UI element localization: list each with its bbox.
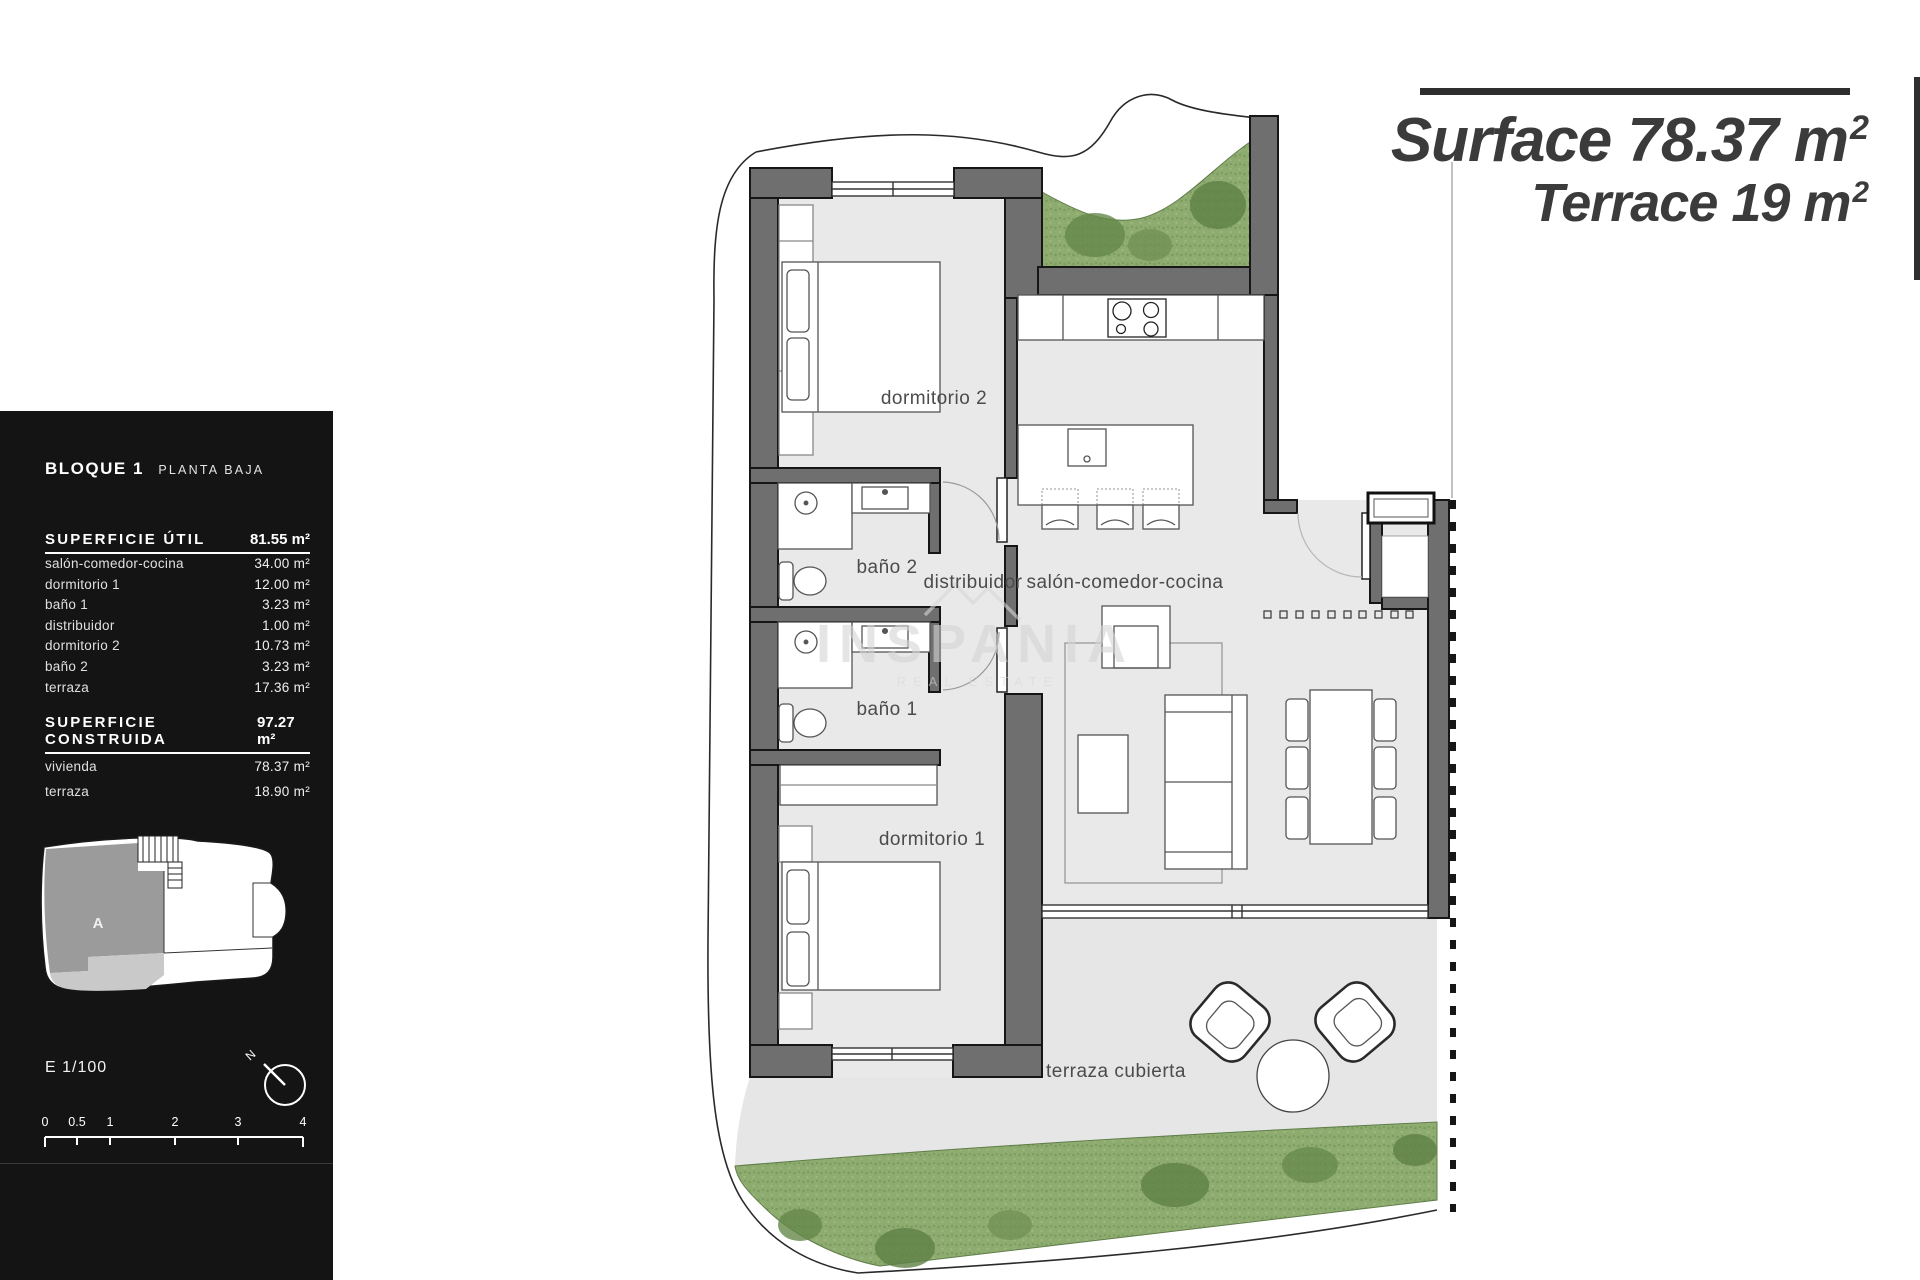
- keyplan-map: A: [26, 831, 311, 1026]
- table-row: vivienda78.37 m²: [45, 754, 310, 779]
- surface-unit: m2: [1794, 106, 1868, 175]
- label-bano2: baño 2: [856, 557, 917, 578]
- construida-header: SUPERFICIE CONSTRUIDA 97.27 m²: [45, 714, 310, 754]
- page-edge-bar: [1914, 77, 1920, 280]
- table-row: terraza17.36 m²: [45, 678, 310, 699]
- window-living-icon: [1042, 905, 1428, 918]
- surface-label: Surface: [1391, 106, 1611, 175]
- window-dormitorio2-icon: [832, 182, 954, 196]
- util-header: SUPERFICIE ÚTIL 81.55 m²: [45, 531, 310, 554]
- surface-value: 78.37: [1628, 106, 1778, 175]
- keyplan-unit-label: A: [93, 915, 104, 932]
- terrace-value: 19: [1731, 173, 1789, 233]
- compass-north-label: N: [243, 1047, 259, 1063]
- watermark-text: INSPANIA: [816, 614, 1134, 674]
- label-dormitorio2: dormitorio 2: [881, 388, 987, 409]
- util-title: SUPERFICIE ÚTIL: [45, 531, 206, 548]
- scale-text: E 1/100: [45, 1059, 107, 1077]
- scale-bar: 0 0.5 1 2 3 4: [0, 1109, 333, 1155]
- label-terraza: terraza cubierta: [1046, 1061, 1186, 1082]
- scalebar-tick: 4: [300, 1115, 307, 1129]
- label-salon: salón-comedor-cocina: [1027, 572, 1224, 593]
- terrace-line: Terrace 19 m2: [1391, 172, 1868, 234]
- table-row: baño 23.23 m²: [45, 657, 310, 678]
- superficie-construida-table: SUPERFICIE CONSTRUIDA 97.27 m² vivienda7…: [45, 714, 310, 804]
- label-distribuidor: distribuidor: [924, 572, 1023, 593]
- table-row: salón-comedor-cocina34.00 m²: [45, 554, 310, 575]
- compass-icon: N: [240, 1039, 320, 1117]
- floorplan-page: INSPANIA REAL ESTATE dormitorio 2 baño 2…: [0, 0, 1920, 1280]
- surface-header: Surface 78.37 m2 Terrace 19 m2: [1391, 88, 1868, 234]
- label-bano1: baño 1: [856, 699, 917, 720]
- dining-set-icon: [1286, 690, 1396, 844]
- scalebar-tick: 0.5: [68, 1115, 85, 1129]
- kitchen-counter-icon: [1018, 295, 1264, 340]
- block-title-row: BLOQUE 1 PLANTA BAJA: [45, 459, 264, 479]
- table-row: terraza18.90 m²: [45, 779, 310, 804]
- construida-title: SUPERFICIE CONSTRUIDA: [45, 714, 257, 748]
- watermark-subtext: REAL ESTATE: [897, 674, 1060, 689]
- window-dormitorio1-icon: [832, 1048, 953, 1060]
- table-row: distribuidor1.00 m²: [45, 616, 310, 637]
- info-panel: BLOQUE 1 PLANTA BAJA SUPERFICIE ÚTIL 81.…: [0, 411, 333, 1280]
- bed-dormitorio1-icon: [779, 765, 940, 1029]
- construida-total: 97.27 m²: [257, 714, 310, 748]
- terrace-unit: m2: [1803, 173, 1868, 233]
- block-title: BLOQUE 1: [45, 459, 144, 478]
- table-row: dormitorio 210.73 m²: [45, 636, 310, 657]
- superficie-util-table: SUPERFICIE ÚTIL 81.55 m² salón-comedor-c…: [45, 531, 310, 698]
- kitchen-island-icon: [1018, 425, 1193, 529]
- panel-divider: [0, 1163, 333, 1164]
- surface-line: Surface 78.37 m2: [1391, 109, 1868, 172]
- scalebar-tick: 2: [172, 1115, 179, 1129]
- label-dormitorio1: dormitorio 1: [879, 829, 985, 850]
- util-total: 81.55 m²: [250, 531, 310, 548]
- header-rule: [1420, 88, 1850, 95]
- scalebar-tick: 0: [42, 1115, 49, 1129]
- table-row: dormitorio 112.00 m²: [45, 575, 310, 596]
- scalebar-tick: 3: [235, 1115, 242, 1129]
- table-row: baño 13.23 m²: [45, 595, 310, 616]
- block-subtitle: PLANTA BAJA: [158, 463, 264, 477]
- terrace-label: Terrace: [1531, 173, 1717, 233]
- scalebar-tick: 1: [107, 1115, 114, 1129]
